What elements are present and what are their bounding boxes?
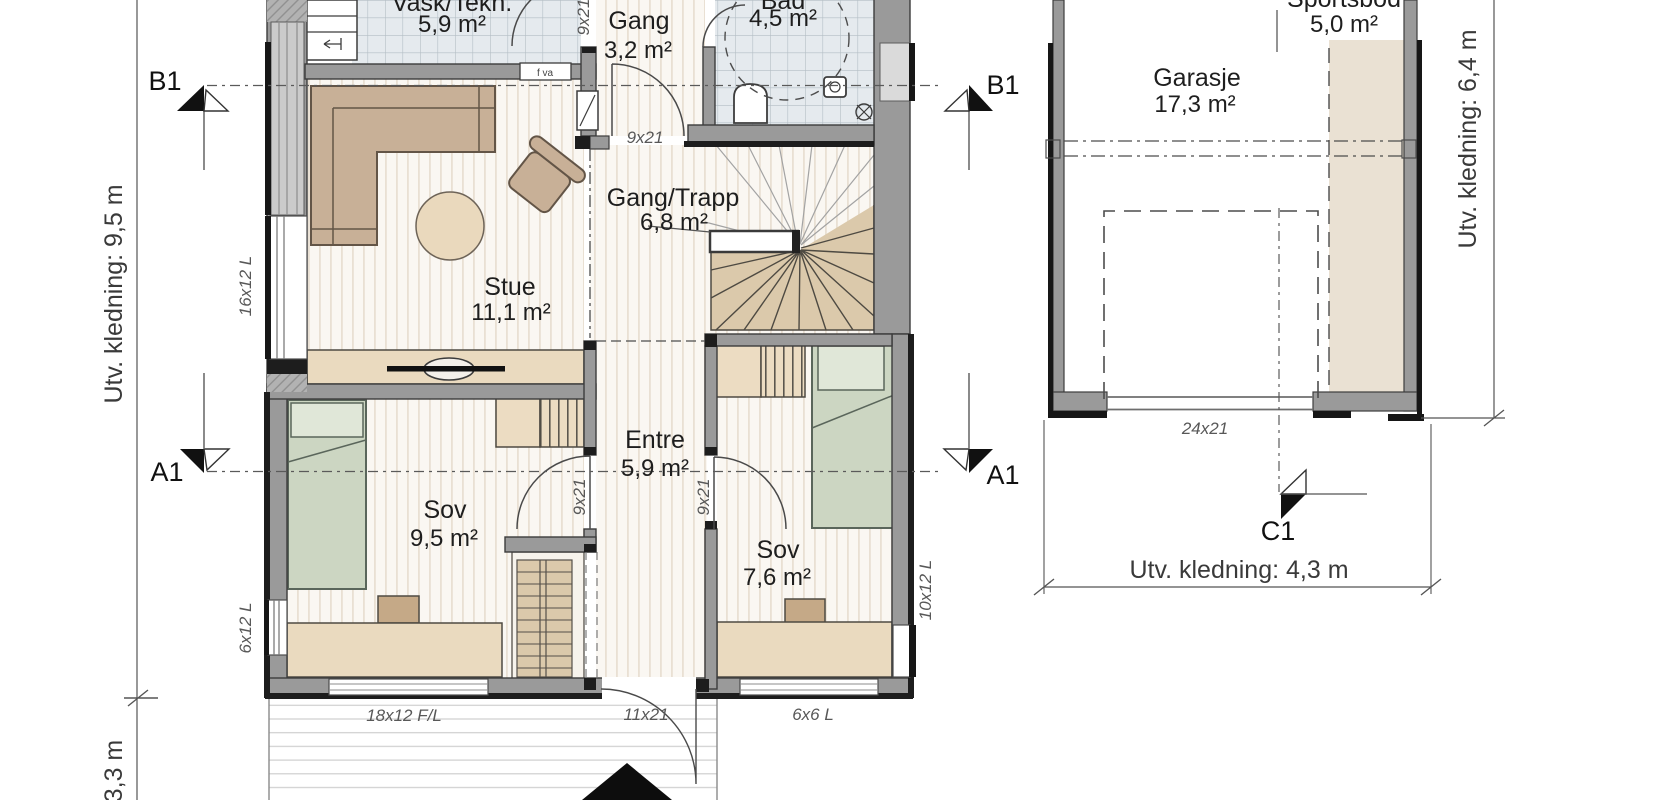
svg-text:Entre: Entre	[625, 426, 685, 454]
svg-text:6x6 L: 6x6 L	[792, 705, 834, 724]
svg-text:Sov: Sov	[423, 496, 467, 524]
svg-text:B1: B1	[986, 70, 1019, 100]
svg-text:18x12 F/L: 18x12 F/L	[366, 706, 442, 725]
svg-text:6x12 L: 6x12 L	[236, 602, 255, 653]
svg-text:7,6 m²: 7,6 m²	[743, 564, 811, 591]
svg-text:A1: A1	[986, 460, 1019, 490]
svg-text:17,3 m²: 17,3 m²	[1154, 91, 1235, 118]
svg-text:9x21: 9x21	[574, 0, 593, 35]
svg-text:Utv. kledning: 4,3 m: Utv. kledning: 4,3 m	[1129, 556, 1348, 584]
svg-text:B1: B1	[148, 66, 181, 96]
svg-text:6,8 m²: 6,8 m²	[640, 209, 708, 236]
svg-text:f va: f va	[537, 68, 554, 79]
svg-text:A1: A1	[150, 457, 183, 487]
svg-text:24x21: 24x21	[1181, 419, 1228, 438]
svg-text:11,1 m²: 11,1 m²	[471, 299, 551, 326]
svg-text:Gang: Gang	[608, 7, 669, 35]
svg-text:5,0 m²: 5,0 m²	[1310, 11, 1378, 38]
svg-text:4,5 m²: 4,5 m²	[749, 5, 817, 32]
svg-text:9x21: 9x21	[694, 479, 713, 516]
svg-text:Utv. kledning: 9,5 m: Utv. kledning: 9,5 m	[100, 184, 128, 403]
svg-text:5,9 m²: 5,9 m²	[418, 11, 486, 38]
svg-text:Sov: Sov	[756, 536, 800, 564]
svg-text:9,5 m²: 9,5 m²	[410, 525, 478, 552]
svg-text:Gang/Trapp: Gang/Trapp	[607, 184, 739, 212]
svg-text:9x21: 9x21	[570, 479, 589, 516]
svg-text:5,9 m²: 5,9 m²	[621, 455, 689, 482]
svg-text:10x12 L: 10x12 L	[916, 560, 935, 621]
svg-text:Garasje: Garasje	[1153, 64, 1241, 92]
svg-text:11x21: 11x21	[623, 705, 668, 724]
svg-text:Utv. kledning: 6,4 m: Utv. kledning: 6,4 m	[1454, 29, 1482, 248]
svg-text:16x12 L: 16x12 L	[236, 256, 255, 317]
svg-text:C1: C1	[1261, 516, 1296, 546]
svg-text:3,3 m: 3,3 m	[100, 740, 128, 800]
svg-text:Stue: Stue	[484, 273, 535, 301]
svg-text:3,2 m²: 3,2 m²	[604, 37, 672, 64]
svg-text:9x21: 9x21	[627, 128, 664, 147]
